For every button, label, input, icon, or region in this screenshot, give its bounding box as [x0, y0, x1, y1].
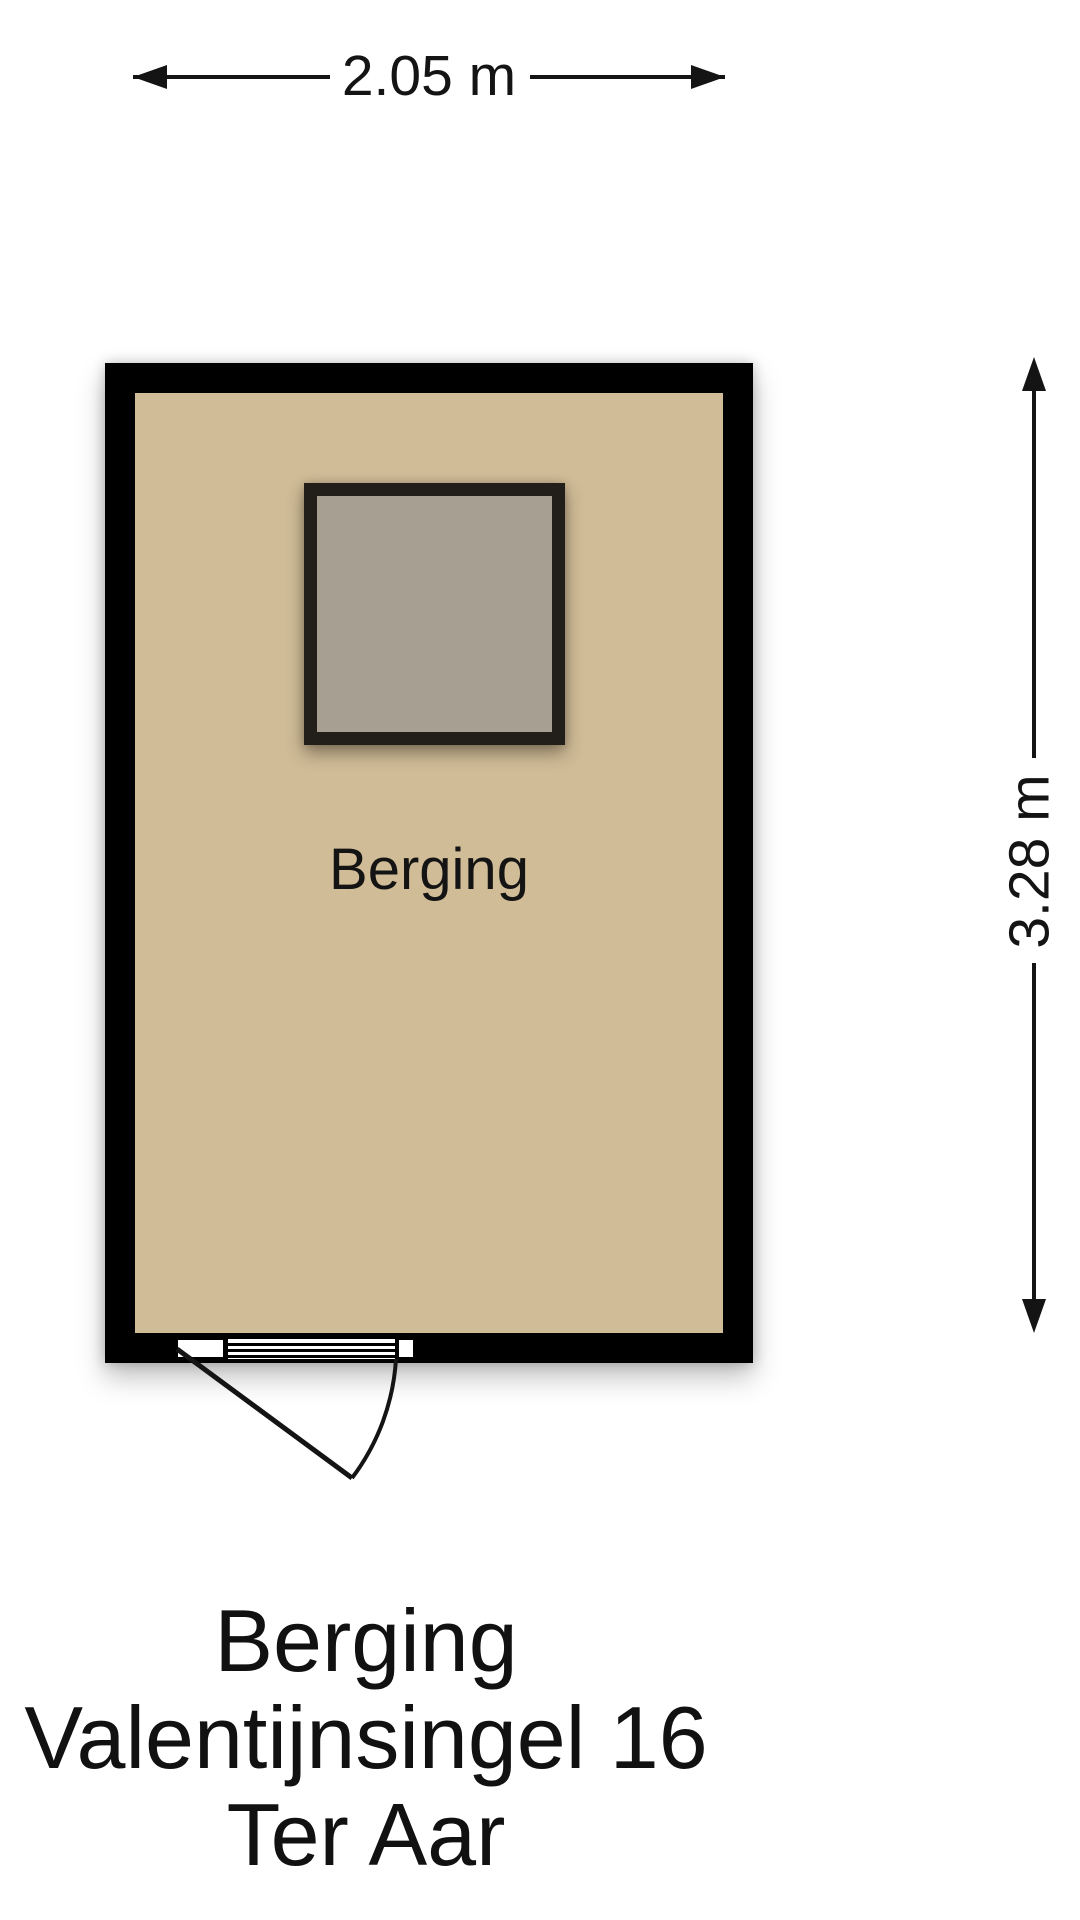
height-dimension-line-top — [1032, 385, 1036, 758]
door-threshold — [228, 1336, 395, 1362]
room-label: Berging — [279, 840, 579, 900]
height-arrowhead-bottom-icon — [1022, 1299, 1046, 1333]
height-dimension-line-bottom — [1032, 963, 1036, 1301]
caption-street: Valentijnsingel 16 — [1, 1689, 731, 1786]
height-dimension-label: 3.28 m — [1002, 712, 1059, 1012]
skylight-frame — [304, 483, 565, 745]
door-threshold-line — [228, 1349, 395, 1352]
door-leaf-line — [177, 1349, 352, 1478]
skylight-panel — [317, 496, 552, 732]
door-jamb-right — [395, 1336, 417, 1361]
width-arrowhead-right-icon — [691, 65, 725, 89]
floorplan-canvas: 2.05 m 3.28 m Berging Berging V — [0, 0, 1080, 1920]
caption-room-name: Berging — [1, 1592, 731, 1689]
door-threshold-line — [228, 1343, 395, 1346]
caption-city: Ter Aar — [1, 1786, 731, 1883]
caption-block: Berging Valentijnsingel 16 Ter Aar — [1, 1592, 731, 1883]
door-swing-arc — [352, 1359, 396, 1478]
door-jamb-left — [173, 1335, 228, 1362]
door-threshold-line — [228, 1355, 395, 1358]
